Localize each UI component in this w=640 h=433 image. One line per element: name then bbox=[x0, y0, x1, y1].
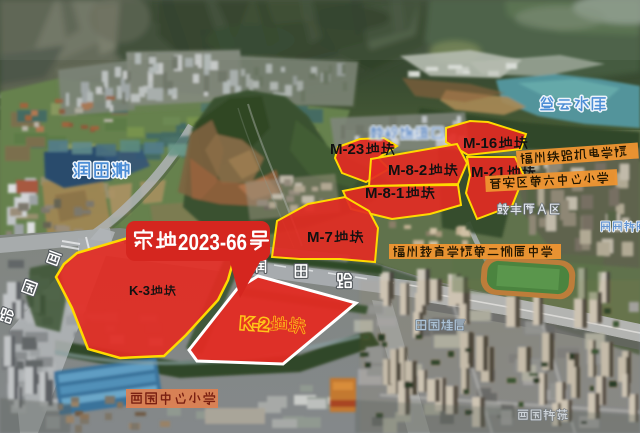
svg-text:M-16: M-16 bbox=[463, 135, 497, 152]
svg-text:M-7: M-7 bbox=[307, 229, 333, 246]
svg-text:K-3: K-3 bbox=[129, 283, 150, 298]
svg-text:K-2: K-2 bbox=[239, 313, 269, 335]
svg-text:2023-66: 2023-66 bbox=[178, 229, 247, 255]
svg-text:M-23: M-23 bbox=[330, 141, 364, 158]
svg-text:M-8-2: M-8-2 bbox=[388, 162, 427, 179]
svg-text:M-8-1: M-8-1 bbox=[365, 185, 404, 202]
